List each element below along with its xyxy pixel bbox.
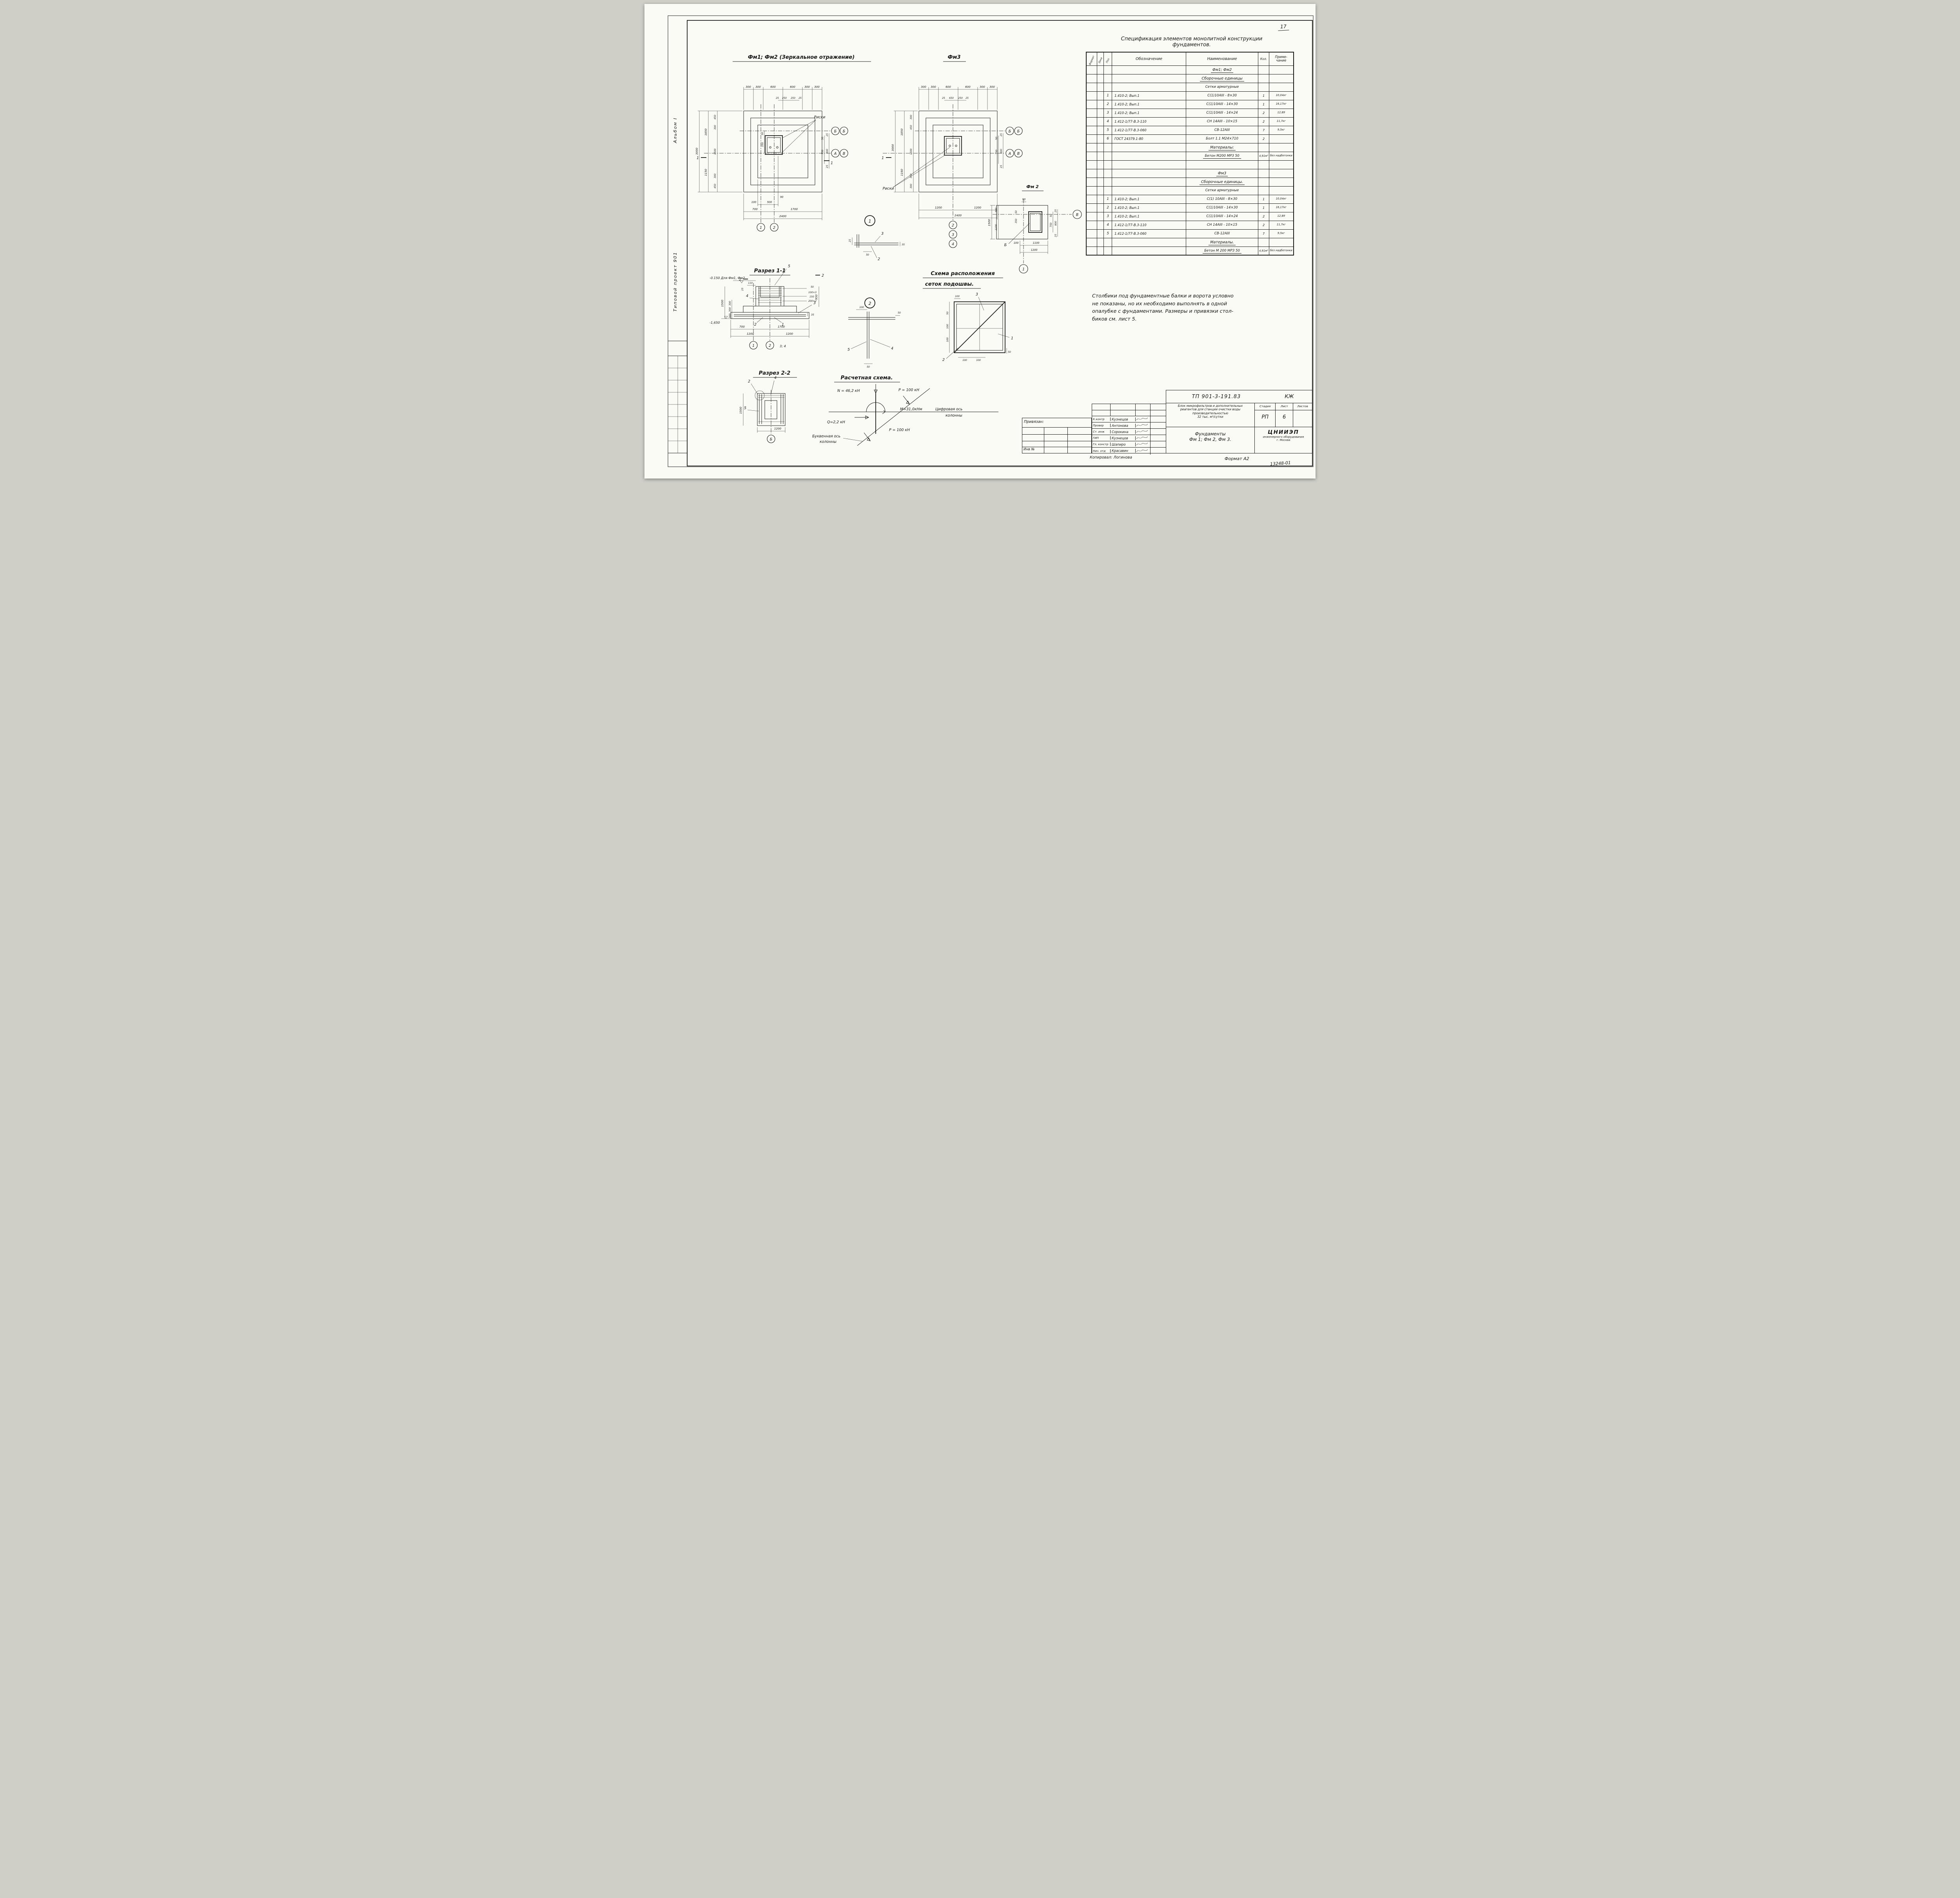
dim: 1160 xyxy=(900,169,904,176)
callout: 5 xyxy=(744,406,746,410)
spec-title-line1: Спецификация элементов монолитной констр… xyxy=(1087,36,1297,42)
dim: 25 xyxy=(849,239,851,242)
person-role: ГИП xyxy=(1092,436,1111,440)
person-name: Красавин xyxy=(1111,449,1136,453)
axis-caption: Буквенная ось xyxy=(812,434,840,439)
detail-2: 2 100 50 50 5 4 xyxy=(848,298,901,368)
axis-caption: колонны xyxy=(820,440,837,444)
cut-mark: 2 xyxy=(739,277,741,282)
dim: 1850 xyxy=(900,128,904,136)
dim: 50 xyxy=(995,137,998,140)
dim: 50 xyxy=(811,286,814,288)
dim: 750 xyxy=(995,150,998,154)
dim: 1500 xyxy=(987,219,991,226)
cut-mark: 1 xyxy=(831,161,833,165)
dim: 25 xyxy=(776,97,779,100)
stage-value: РП xyxy=(1255,410,1276,427)
spec-header-note: Приме-чание xyxy=(1269,52,1294,65)
plan-fm1-fm2: Фм1; Фм2 (Зеркальное отражение) 300 300 … xyxy=(695,54,871,231)
dim: 300 xyxy=(729,314,731,318)
callout: 5 xyxy=(848,348,850,352)
dim: 35 xyxy=(811,314,814,316)
axis-label: В xyxy=(843,152,845,156)
dim: 300 xyxy=(989,85,995,89)
spec-header-zone: Зона xyxy=(1097,52,1103,65)
note-line: биков см. лист 5. xyxy=(1092,315,1283,323)
dim: 700 xyxy=(739,325,745,328)
spec-row: Бетон М200 МРЗ 504,91м³без надбетонки xyxy=(1086,152,1294,160)
mesh-layout-scheme: Схема расположения сеток подошвы. 3 1 2 … xyxy=(923,271,1013,362)
personnel-row: ГИП Кузнецов xyxy=(1092,435,1166,441)
axis-label: 4 xyxy=(952,242,954,247)
inventory-label: Инв № xyxy=(1024,448,1034,451)
plan-fm2-small: Фм 2 1 В 90 1500 400 1100 50 350 50 750 … xyxy=(987,184,1082,273)
force-label: Q=2,2 кН xyxy=(827,420,845,424)
axis-label: Б xyxy=(1009,129,1011,134)
dim: 1500 xyxy=(910,149,913,155)
dim: 150 xyxy=(809,295,814,298)
drawing-sheet: Фм1; Фм2 (Зеркальное отражение) 300 300 … xyxy=(644,4,1316,479)
page-number: 17 xyxy=(1278,23,1289,31)
dim: 35 xyxy=(902,243,905,246)
dim: 1200 xyxy=(974,206,982,209)
spec-row: 31.410-2; Вып.1С(1)10АIII - 14×24212,89 xyxy=(1086,109,1294,117)
person-name: Антонова xyxy=(1111,424,1136,428)
person-name: Сорокина xyxy=(1111,430,1136,434)
sheets-value xyxy=(1293,410,1312,427)
spec-row: Сборочные единицы xyxy=(1086,74,1294,83)
document-mark: КЖ xyxy=(1267,394,1312,400)
person-role: Нач. отд xyxy=(1092,449,1111,453)
spec-title: Спецификация элементов монолитной констр… xyxy=(1087,36,1297,48)
detail-number: 1 xyxy=(869,219,871,224)
dim: 25 xyxy=(1054,234,1057,237)
person-name: Кузнецов xyxy=(1111,436,1136,440)
dim: 50 xyxy=(946,312,949,315)
callout: 2 xyxy=(878,257,880,261)
dim: 600 xyxy=(770,85,776,89)
axis-label: А xyxy=(1008,152,1011,156)
axis-label: 2 xyxy=(769,344,771,348)
format-label: Формат А2 xyxy=(1225,456,1249,461)
force-label: М=31,0кНм xyxy=(900,407,922,412)
sheet-value: 6 xyxy=(1276,410,1293,427)
spec-row: 21.410-2; Вып.1С(1)10АIII - 14×30116,17к… xyxy=(1086,100,1294,109)
dim: 300 xyxy=(714,174,717,178)
axis-label: Б xyxy=(843,129,845,134)
axis-label: В xyxy=(1076,213,1078,217)
margin-project-label: Типовой проект 901 xyxy=(673,218,678,312)
force-label: N = 46,2 кН xyxy=(837,389,860,393)
dim: 1150 xyxy=(704,169,708,176)
sheets-header: Листов xyxy=(1293,403,1312,410)
mesh-title-1: Схема расположения xyxy=(931,271,995,277)
dim: 300 xyxy=(729,307,731,312)
dim: 450 xyxy=(910,125,913,130)
spec-row: 21.410-2; Вып.1С(1)10АIII - 14×30116,17к… xyxy=(1086,203,1294,212)
dim: 350 xyxy=(1015,219,1018,223)
spec-header-qty: Кол. xyxy=(1258,52,1269,65)
dim: 300 xyxy=(746,85,751,89)
dim: 600 xyxy=(965,85,971,89)
axis-label: А xyxy=(834,152,837,156)
dim: 50 xyxy=(1008,351,1011,353)
cut-mark: 1 xyxy=(882,156,884,160)
riski-label: Риски xyxy=(814,115,826,120)
personnel-row: Гл. констр Шапиро xyxy=(1092,441,1166,448)
dim: 1200 xyxy=(747,332,754,335)
dim: 50 xyxy=(866,254,869,256)
dim: 250 xyxy=(958,97,963,100)
title-block: ТП 901-3-191.83 КЖ Блок микрофильтров и … xyxy=(1166,390,1312,453)
dim: 250 xyxy=(782,97,787,100)
dim: 50 xyxy=(821,137,824,140)
dim: 1200 xyxy=(774,427,782,430)
axis-label: 1 xyxy=(1022,267,1025,272)
note-line: не показаны, но их необходимо выполнять … xyxy=(1092,300,1283,308)
dim: 300 xyxy=(980,85,985,89)
force-label: P = 100 кН xyxy=(889,428,910,432)
organization: ЦНИИЭП инженерного оборудования г. Москв… xyxy=(1255,427,1312,453)
project-description: Блок микрофильтров и дополнительныхреаге… xyxy=(1166,403,1255,427)
dim: 450 xyxy=(714,115,717,120)
axis-label: Б xyxy=(1017,129,1020,134)
spec-row: 6ГОСТ 24379.1-80Болт 1.1 М24×7102 xyxy=(1086,134,1294,143)
personnel-block: К.контр Кузнецов Провер Антонова Ст. инж… xyxy=(1092,404,1166,453)
dim: 1100 xyxy=(995,224,998,230)
attached-box: Привязан: Инв № xyxy=(1022,418,1092,453)
dim: 250 xyxy=(791,97,795,100)
axis-label: Б xyxy=(770,437,772,442)
dim: 1200 xyxy=(1031,248,1038,252)
dim: 750 xyxy=(1050,223,1053,227)
dim: 90 xyxy=(780,196,783,199)
dim: 100 xyxy=(955,295,960,298)
note-line: опалубке с фундаментами. Размеры и привя… xyxy=(1092,307,1283,315)
dim: 350 xyxy=(761,142,764,147)
dim: 2400 xyxy=(779,214,787,218)
copied-by: Копировал: Логинова xyxy=(1090,455,1132,460)
dim: 300 xyxy=(931,85,936,89)
dim: 800 xyxy=(1000,149,1003,154)
axis-label: 1 xyxy=(760,226,762,230)
dim: 25 xyxy=(826,133,829,136)
dim: 50 xyxy=(761,132,764,135)
attached-label: Привязан: xyxy=(1022,418,1091,428)
section-1-1: Разрез 1-1 -0.150 Для Фм1, Фм2 -1,650 15… xyxy=(710,264,824,349)
dim: 25 xyxy=(741,288,744,291)
axis-note: 3; 4 xyxy=(780,344,786,348)
plan3-title: Фм3 xyxy=(947,54,960,60)
person-role: К.контр xyxy=(1092,417,1111,421)
spec-row: 41.412-1/77-В.3-110СН 14АIII - 10×15211,… xyxy=(1086,117,1294,126)
spec-row xyxy=(1086,160,1294,169)
axis-label: Б xyxy=(834,129,837,134)
riski-label: Риски xyxy=(883,187,894,191)
callout: 3 xyxy=(976,292,978,297)
dim: 100 xyxy=(1014,241,1019,245)
note-line: Столбики под фундаментные балки и ворота… xyxy=(1092,292,1283,300)
dim: 25 xyxy=(826,165,829,168)
mesh-title-2: сеток подошвы. xyxy=(925,281,974,287)
dim: 950 xyxy=(815,294,818,300)
margin-table xyxy=(668,356,687,453)
dim: 800 xyxy=(1054,221,1057,226)
dim: 50 xyxy=(867,366,870,368)
dim: 50 xyxy=(898,312,901,314)
dim: 1850 xyxy=(704,128,708,136)
dim: 100 xyxy=(976,359,981,362)
dim: 25 xyxy=(1000,165,1003,168)
axis-label: 2 xyxy=(952,223,954,228)
spec-row: Бетон М 200 МРЗ 504,91м³без надбетонки xyxy=(1086,247,1294,255)
personnel-row: Ст. инж Сорокина xyxy=(1092,429,1166,435)
callout: 4 xyxy=(746,294,748,298)
cut-mark: 2 xyxy=(822,274,824,278)
dim: 100 xyxy=(859,306,864,309)
dim: 1500 xyxy=(739,406,742,414)
spec-row: 41.412-1/77-В.3-110СН 14АIII - 10×15211,… xyxy=(1086,221,1294,229)
axis-caption: колонны xyxy=(946,413,962,418)
spec-row: Сетки арматурные xyxy=(1086,186,1294,195)
margin-album-label: Альбом I xyxy=(673,88,678,143)
callout: 2 xyxy=(942,358,945,362)
spec-header-row: Формат Зона Поз. Обозначение Наименовани… xyxy=(1086,52,1294,65)
dim: 110 xyxy=(748,282,753,285)
person-role: Провер xyxy=(1092,424,1111,427)
plan2-title: Фм 2 xyxy=(1026,184,1039,189)
spec-row: 11.410-2; Вып.1С(1)10АIII - 8×30110,04кг xyxy=(1086,91,1294,100)
document-number: ТП 901-3-191.83 xyxy=(1166,394,1267,400)
axis-label: Б xyxy=(1004,243,1007,247)
dim: 300 xyxy=(729,301,731,306)
spec-row: Сборочные единицы. xyxy=(1086,178,1294,186)
stage-header: Стадия xyxy=(1255,403,1276,410)
axis-label: 3 xyxy=(952,233,954,237)
dim: 1500 xyxy=(714,149,717,155)
spec-row: Материалы: xyxy=(1086,143,1294,152)
dim: 100×3 xyxy=(808,291,817,294)
signature xyxy=(1136,447,1151,455)
personnel-row: К.контр Кузнецов xyxy=(1092,416,1166,422)
dim: 2400 xyxy=(955,214,962,217)
dim: 600 xyxy=(946,85,951,89)
dim: 1200 xyxy=(786,332,793,335)
person-name: Шапиро xyxy=(1111,442,1136,446)
dim: 300 xyxy=(921,85,926,89)
calc-title: Расчетная схема. xyxy=(840,375,893,381)
person-name: Кузнецов xyxy=(1111,417,1136,421)
dim: 1700 xyxy=(791,207,798,211)
section11-title: Разрез 1-1 xyxy=(754,268,786,274)
spec-row: 51.412-1/77-В.3-060СВ-12АIII79,5кг xyxy=(1086,126,1294,134)
dim: 25 xyxy=(799,97,802,100)
spec-row: Фм3 xyxy=(1086,169,1294,178)
spec-header-format: Формат xyxy=(1086,52,1097,65)
dim: 500 xyxy=(767,201,772,204)
dim: 1200 xyxy=(935,206,942,209)
dim: 300 xyxy=(804,85,810,89)
callout: 4 xyxy=(891,346,893,351)
dim: 1100 xyxy=(1033,241,1040,245)
dim: 400 xyxy=(995,208,998,212)
dim: 1700 xyxy=(778,325,785,328)
callout: 5 xyxy=(788,264,790,268)
dim: 450 xyxy=(714,184,717,189)
sheet-header: Лист xyxy=(1276,403,1293,410)
dim: 25 xyxy=(942,97,945,100)
spec-header-name: Наименование xyxy=(1186,52,1258,65)
elevation: -1,650 xyxy=(710,321,720,324)
axis-label: 2 xyxy=(773,226,775,230)
section-2-2: Разрез 2-2 2 4 5 1500 1200 Б xyxy=(739,370,797,443)
detail-number: 2 xyxy=(869,301,871,306)
axis-caption: Цифровая ось xyxy=(935,407,962,412)
plan12-title: Фм1; Фм2 (Зеркальное отражение) xyxy=(748,54,855,60)
dim: 100 xyxy=(962,359,967,362)
spec-table: Формат Зона Поз. Обозначение Наименовани… xyxy=(1086,52,1294,256)
dim: 100 xyxy=(946,324,949,329)
dim: 300 xyxy=(910,184,913,189)
dim: 100 xyxy=(751,201,757,204)
dim: 800 xyxy=(826,149,829,154)
cut-mark: 1 xyxy=(697,156,699,160)
axis-label: 1 xyxy=(752,344,755,348)
spec-row: Фм1; Фм2 xyxy=(1086,65,1294,74)
spec-row: 31.410-2; Вып.1С(1)10АIII - 14×24212,89 xyxy=(1086,212,1294,221)
dim: 100 xyxy=(946,337,949,342)
callout: 3 xyxy=(813,301,816,305)
dim: 50 xyxy=(1050,214,1053,217)
callout: 2 xyxy=(754,323,757,327)
spec-header-pos: Поз. xyxy=(1104,52,1112,65)
dim: 700 xyxy=(752,207,758,211)
spec-row: Сетки арматурные xyxy=(1086,83,1294,91)
dim: 300 xyxy=(910,115,913,120)
sheet-subject: Фундаменты Фм 1; Фм 2, Фм 3. xyxy=(1166,427,1255,453)
dim: 25 xyxy=(1054,209,1057,212)
dim: 750 xyxy=(821,150,824,154)
general-note: Столбики под фундаментные балки и ворота… xyxy=(1092,292,1283,323)
callout: 3 xyxy=(881,232,884,236)
dim: 90 xyxy=(1022,198,1025,201)
callout: 1 xyxy=(1011,336,1013,341)
force-label: P = 100 кН xyxy=(898,388,919,392)
detail-1: 1 25 50 35 3 2 xyxy=(849,216,905,261)
dim: 25 xyxy=(1000,133,1003,136)
dim: 1500 xyxy=(720,299,724,307)
dim: 50 xyxy=(1015,210,1018,214)
dim: 300 xyxy=(755,85,761,89)
calc-scheme: Расчетная схема. N = 46,2 кН P = 100 кН … xyxy=(812,375,998,446)
personnel-row: Нач. отд Красавин xyxy=(1092,448,1166,454)
dim: 3000 xyxy=(695,147,699,155)
plan-fm3: Фм3 300 300 600 600 300 300 25 650 250 2… xyxy=(882,54,1022,248)
spec-row: 11.410-2; Вып.1С(1) 10АIII - 8×30110,04к… xyxy=(1086,195,1294,203)
person-role: Ст. инж xyxy=(1092,430,1111,433)
dim: 300 xyxy=(714,125,717,130)
dim: 600 xyxy=(790,85,795,89)
spec-title-line2: фундаментов. xyxy=(1087,42,1297,48)
spec-row: 51.412-1/77-В.3-060СВ-12АIII79,5кг xyxy=(1086,229,1294,238)
dim: 3000 xyxy=(891,144,895,151)
dim: 25 xyxy=(965,97,969,100)
spec-header-designation: Обозначение xyxy=(1112,52,1186,65)
dim: 650 xyxy=(949,97,954,100)
callout: 4 xyxy=(774,376,777,380)
axis-label: В xyxy=(1017,152,1020,156)
callout: 2 xyxy=(748,379,750,384)
dim: 300 xyxy=(814,85,820,89)
spec-row: Материалы. xyxy=(1086,238,1294,247)
personnel-row: Провер Антонова xyxy=(1092,422,1166,429)
person-role: Гл. констр xyxy=(1092,442,1111,446)
section22-title: Разрез 2-2 xyxy=(759,370,791,376)
